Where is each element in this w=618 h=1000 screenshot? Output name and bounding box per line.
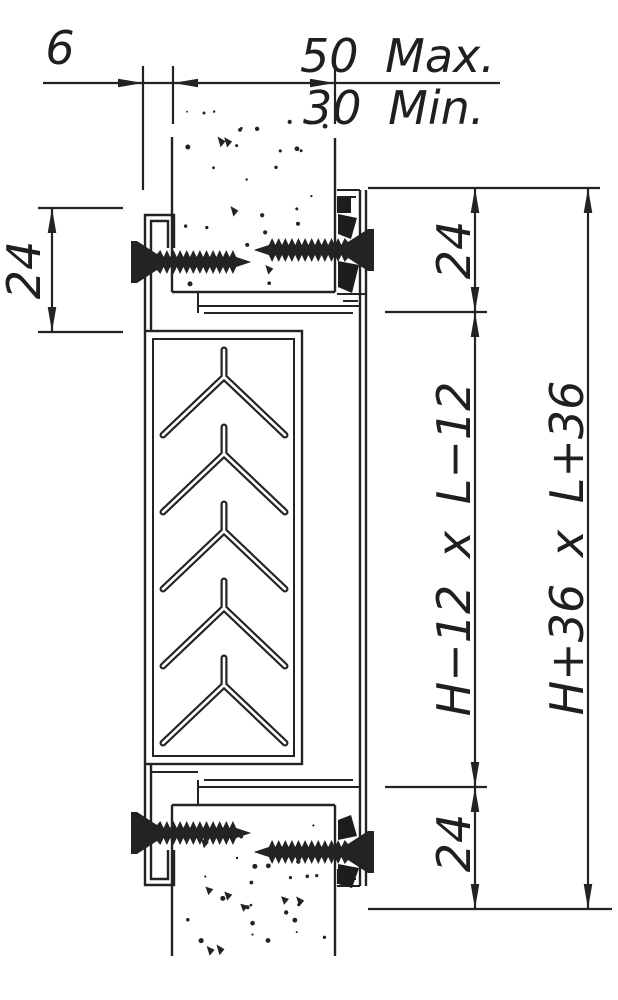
stipple-dot xyxy=(295,146,300,151)
screw-bottom-right xyxy=(254,831,374,873)
label-wall-min: 30 Min. xyxy=(303,81,484,135)
stipple-dot xyxy=(295,207,298,210)
arrowhead xyxy=(471,762,480,787)
stipple-dot xyxy=(184,224,187,227)
arrowhead xyxy=(584,188,593,213)
label-left-frame-depth: 24 xyxy=(0,241,51,300)
stipple-dot xyxy=(323,936,326,939)
stipple-dot xyxy=(251,933,253,935)
arrowhead xyxy=(471,884,480,909)
label-wall-max: 50 Max. xyxy=(300,29,495,83)
arrowhead xyxy=(471,787,480,812)
stipple-dot xyxy=(315,874,318,877)
screw-bottom-left xyxy=(131,812,251,854)
stipple-dot xyxy=(235,144,238,147)
fixing-screws xyxy=(131,229,374,873)
stipple-fleck xyxy=(230,206,238,217)
grille-section-drawing: 6 50 Max. 30 Min. 24 24 H−12 x L−12 24 H… xyxy=(0,0,618,1000)
stipple-fleck xyxy=(207,946,215,956)
frame-step-bottom xyxy=(151,772,360,805)
stipple-dot xyxy=(296,931,298,933)
arrowhead xyxy=(118,79,143,88)
label-right-bottom-margin: 24 xyxy=(427,814,481,873)
label-overall-size: H+36 x L+36 xyxy=(540,381,594,716)
label-frame-gap: 6 xyxy=(45,21,74,75)
stipple-dot xyxy=(236,857,238,859)
core-outer-border xyxy=(145,331,302,764)
arrowhead xyxy=(48,307,57,332)
wall-section-bottom xyxy=(172,805,335,956)
gasket-bottom-right-upper xyxy=(338,815,357,840)
stipple-fleck xyxy=(224,891,232,900)
stipple-dot xyxy=(204,875,206,877)
wall-bottom-edges xyxy=(172,805,335,956)
stipple-dot xyxy=(310,195,312,197)
stipple-dot xyxy=(185,144,190,149)
core-inner-border xyxy=(153,339,294,756)
stipple-fleck xyxy=(281,896,289,905)
stipple-dot xyxy=(220,896,225,901)
stipple-fleck xyxy=(205,887,213,896)
gasket-bottom-right-lower xyxy=(338,864,359,888)
stipple-dot xyxy=(186,918,190,922)
screw-top-left xyxy=(131,241,251,283)
stipple-dot xyxy=(289,876,292,879)
stipple-dot xyxy=(292,918,297,923)
gasket-top-right-lower xyxy=(338,261,359,293)
stipple-dot xyxy=(249,881,253,885)
stipple-dot xyxy=(305,874,309,878)
arrowhead xyxy=(471,312,480,337)
stipple-dot xyxy=(213,110,215,112)
stipple-dot xyxy=(245,243,249,247)
stipple-dot xyxy=(255,127,259,131)
arrowhead xyxy=(173,79,198,88)
stipple-dot xyxy=(296,222,300,226)
chevron-blades xyxy=(163,350,285,743)
stipple-fleck xyxy=(224,137,232,147)
arrowhead xyxy=(471,188,480,213)
stipple-dot xyxy=(199,938,204,943)
louver-core xyxy=(145,331,302,764)
stipple-dot xyxy=(263,230,267,234)
stipple-dot xyxy=(212,166,215,169)
stipple-dot xyxy=(250,904,253,907)
stipple-dot xyxy=(240,127,243,130)
grille-frame xyxy=(145,190,366,888)
gasket-top-right-upper xyxy=(338,214,357,239)
arrowhead xyxy=(584,884,593,909)
stipple-dot xyxy=(187,281,192,286)
wall-section-top xyxy=(172,137,335,292)
arrowhead xyxy=(471,287,480,312)
stipple-dot xyxy=(205,226,208,229)
stipple-dot xyxy=(312,824,314,826)
label-opening-size: H−12 x L−12 xyxy=(427,382,481,717)
stipple-dot xyxy=(300,149,303,152)
frame-lip-top-right xyxy=(337,198,351,213)
stipple-dot xyxy=(260,213,264,217)
dimension-arrowheads xyxy=(48,79,593,909)
stipple-dot xyxy=(267,281,271,285)
drawing-canvas: 6 50 Max. 30 Min. 24 24 H−12 x L−12 24 H… xyxy=(0,0,618,1000)
label-right-top-margin: 24 xyxy=(427,221,481,280)
arrowhead xyxy=(48,208,57,233)
stipple-fleck xyxy=(218,136,226,147)
stipple-dot xyxy=(266,863,271,868)
stipple-fleck xyxy=(265,265,273,275)
stipple-dot xyxy=(186,111,188,113)
dimension-lines xyxy=(38,66,612,909)
stipple-dot xyxy=(245,178,247,180)
stipple-dot xyxy=(250,921,255,926)
wall-top-edges xyxy=(172,137,335,292)
stipple-dot xyxy=(203,112,206,115)
stipple-dot xyxy=(288,120,292,124)
stipple-dot xyxy=(266,938,271,943)
stipple-dot xyxy=(274,166,277,169)
stipple-dot xyxy=(284,910,288,914)
stipple-dot xyxy=(252,864,257,869)
stipple-fleck xyxy=(216,944,224,955)
stipple-dot xyxy=(279,149,282,152)
frame-step-top xyxy=(198,292,360,313)
